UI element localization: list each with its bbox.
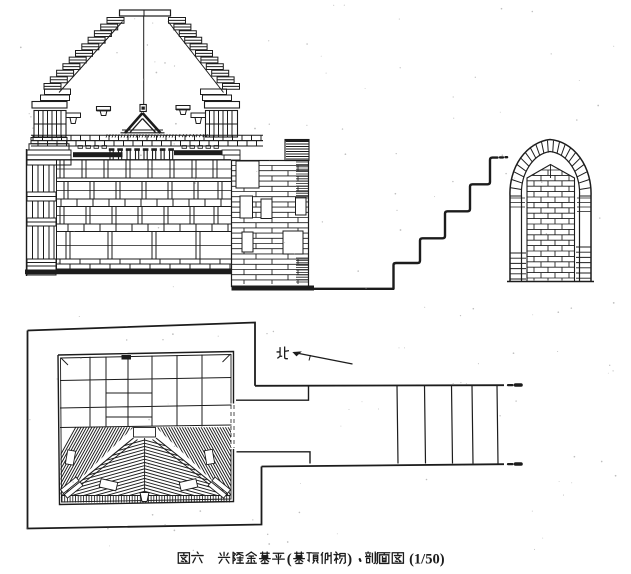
svg-text:(: ( bbox=[287, 552, 292, 568]
svg-text:): ) bbox=[347, 552, 352, 568]
svg-text:(1/50): (1/50) bbox=[409, 552, 445, 568]
